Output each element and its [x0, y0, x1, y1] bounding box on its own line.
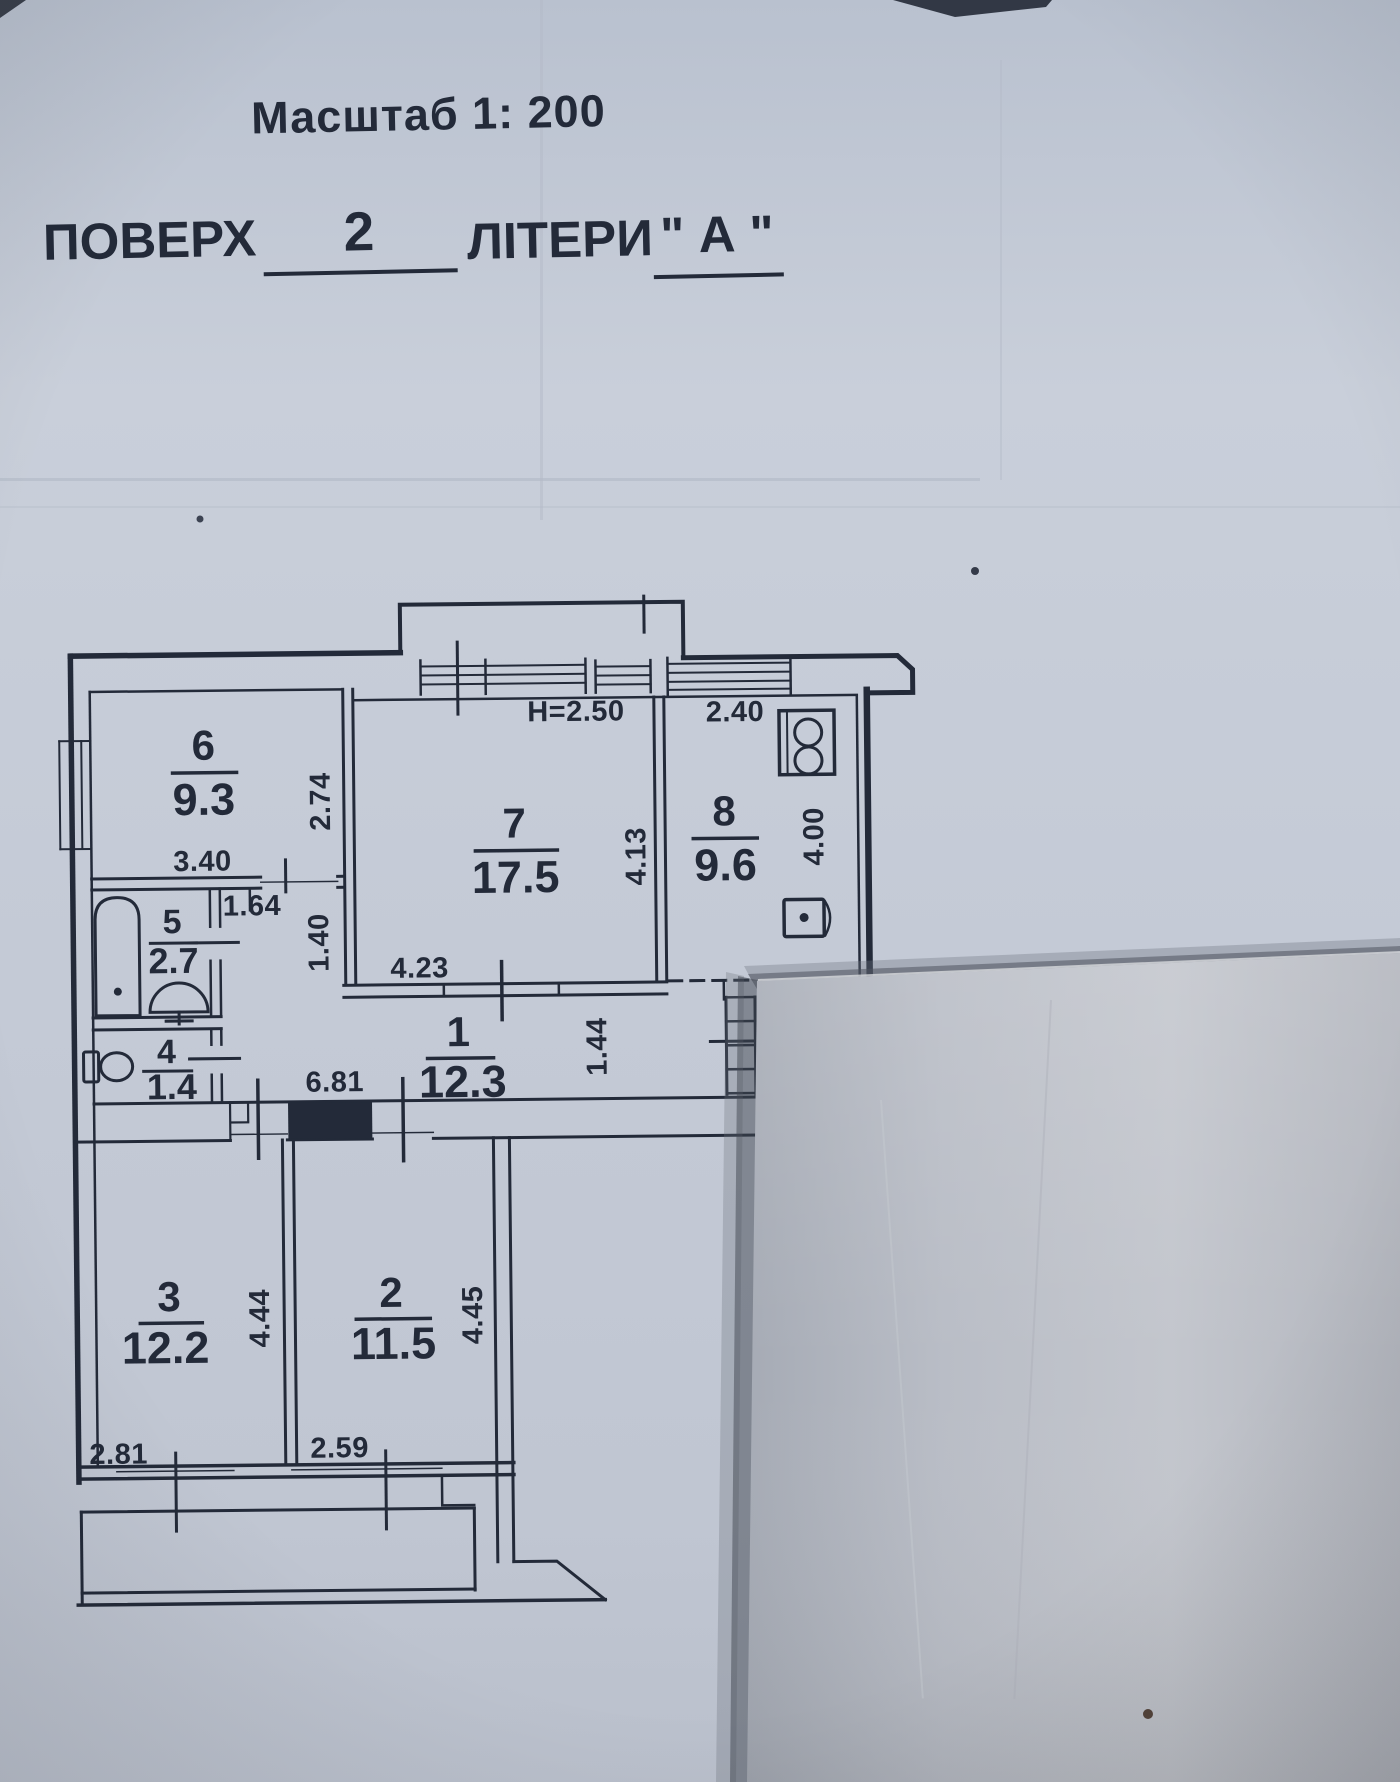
photo-vignette [0, 0, 1400, 1782]
photographed-floorplan-document: Масштаб 1: 200 ПОВЕРХ 2 ЛІТЕРИ " А " [0, 0, 1400, 1782]
floor-plan-sheet: Масштаб 1: 200 ПОВЕРХ 2 ЛІТЕРИ " А " [0, 0, 1400, 1782]
